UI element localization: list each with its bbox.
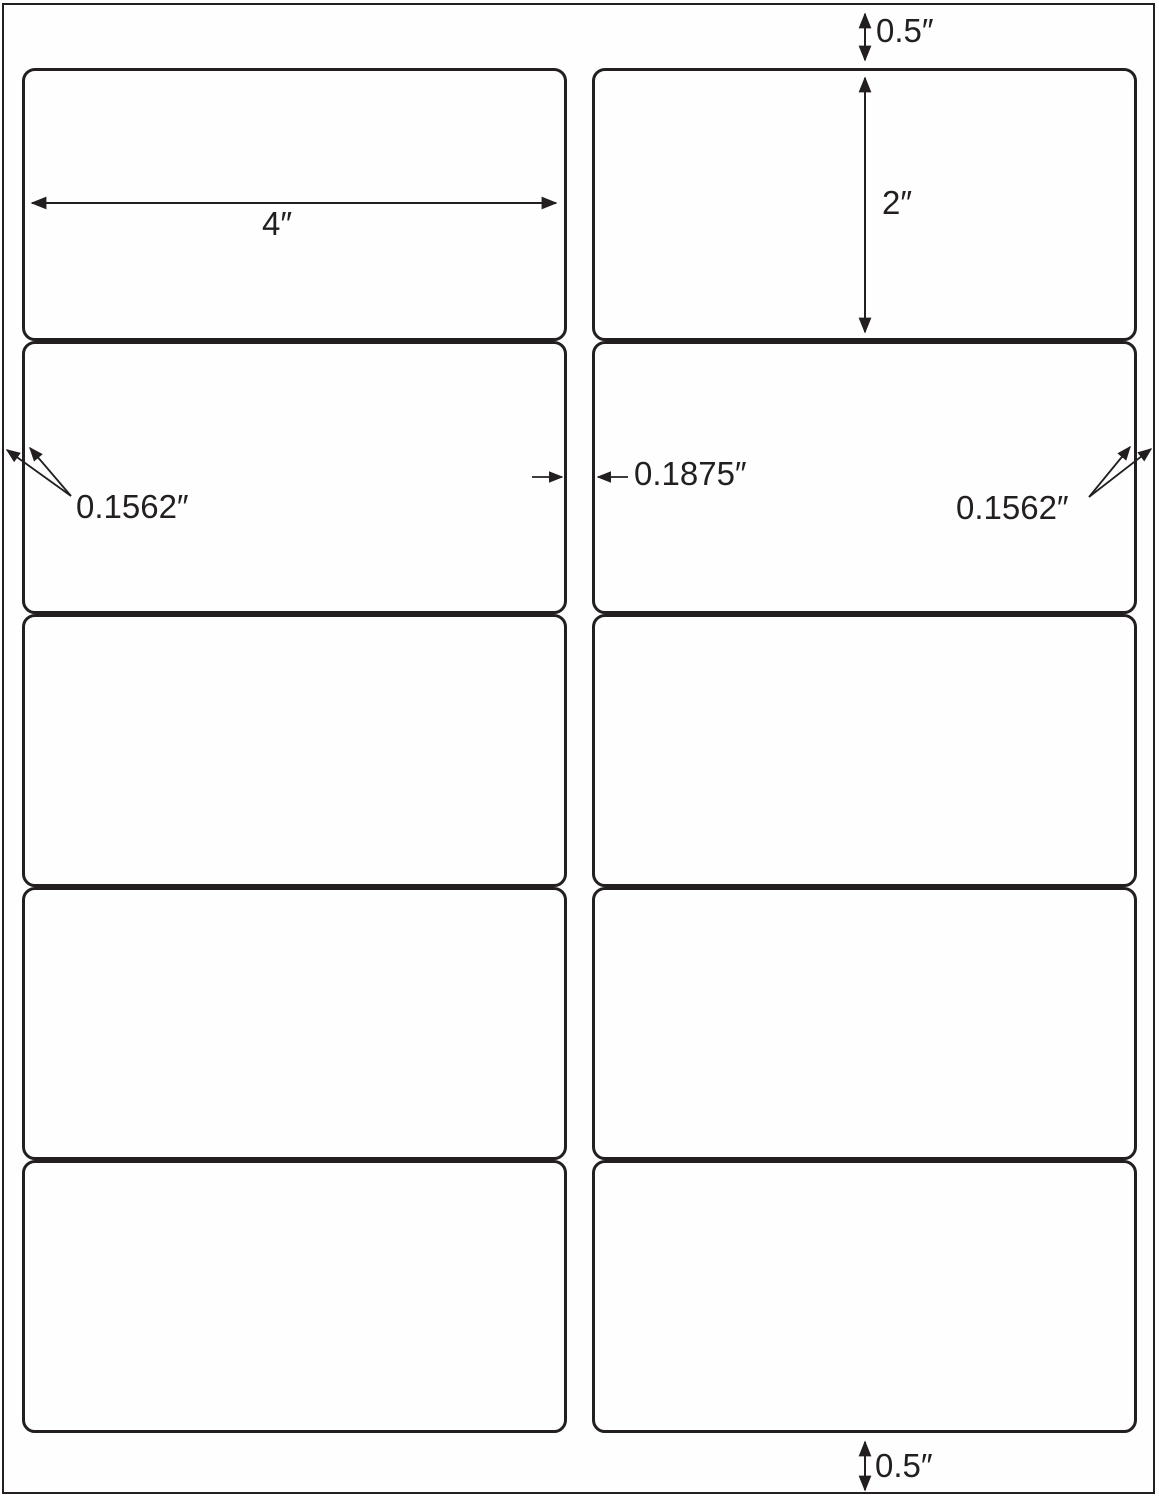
top-margin-dimension: 0.5″ <box>876 13 934 49</box>
label-cell <box>22 341 567 614</box>
right-margin-dimension: 0.1562″ <box>956 490 1069 526</box>
label-cell <box>22 887 567 1160</box>
center-gap-dimension: 0.1875″ <box>634 456 747 492</box>
label-cell <box>592 614 1137 887</box>
label-cell <box>592 1160 1137 1433</box>
label-cell <box>592 68 1137 341</box>
label-height-dimension: 2″ <box>882 185 912 221</box>
left-margin-dimension: 0.1562″ <box>76 489 189 525</box>
label-cell <box>22 614 567 887</box>
bottom-margin-dimension: 0.5″ <box>875 1448 933 1484</box>
label-width-dimension: 4″ <box>262 206 292 242</box>
label-cell <box>22 68 567 341</box>
label-cell <box>592 887 1137 1160</box>
label-sheet-diagram: 0.5″ 2″ 4″ 0.1562″ 0.1875″ 0.1562″ 0.5″ <box>0 0 1159 1500</box>
label-cell <box>22 1160 567 1433</box>
